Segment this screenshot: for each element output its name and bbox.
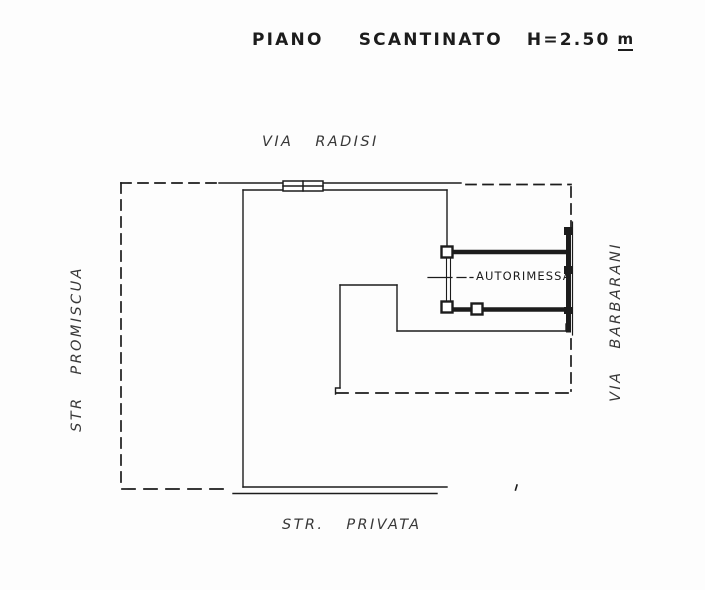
plan-title-unit: m [618, 30, 634, 51]
scan-speck [516, 485, 518, 490]
plan-title-height: H=2.50 [527, 30, 611, 50]
floor-plan-drawing [0, 0, 705, 590]
room-label-autorimessa: AUTORIMESSA [476, 269, 572, 283]
plan-title: PIANO SCANTINATO H=2.50 m [252, 30, 633, 51]
plan-title-name: PIANO SCANTINATO [252, 30, 503, 50]
garage-pillar-bottom-left [442, 302, 453, 313]
floor-plan-page: PIANO SCANTINATO H=2.50 m VIA RADISI STR… [0, 0, 705, 590]
garage-pillar-bottom-mid [472, 304, 483, 315]
garage-pillar-top-left [442, 247, 453, 258]
window-symbol [283, 181, 323, 191]
garage-right-joint-low [564, 307, 573, 314]
street-label-via-radisi: VIA RADISI [262, 134, 379, 150]
building-outline-lines [219, 183, 566, 494]
property-boundary-lines [121, 183, 571, 489]
street-label-via-barbarani: VIA BARBARANI [608, 242, 624, 402]
street-label-str-privata: STR. PRIVATA [282, 517, 422, 533]
street-label-str-promiscua: STR PROMISCUA [69, 266, 85, 432]
garage-right-joint-top [564, 227, 573, 235]
